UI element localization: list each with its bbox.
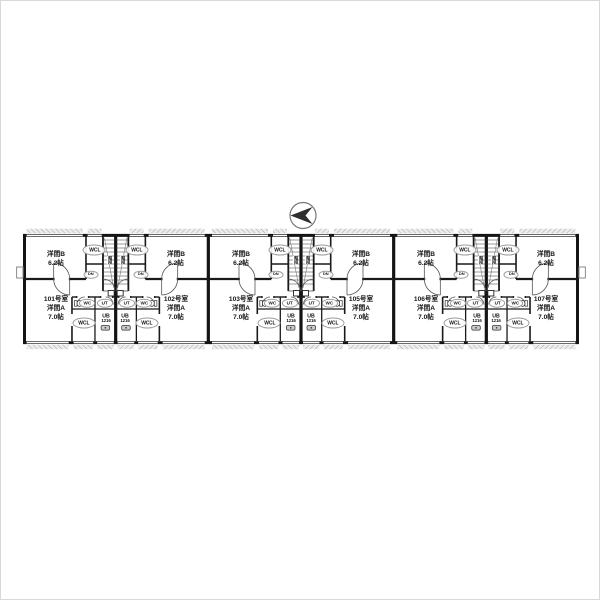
toilet-label: WC: [264, 299, 280, 308]
bath-size-label: 1216: [101, 318, 110, 323]
stairs-label: 階段: [302, 250, 312, 270]
closet-a-label: WCL: [321, 317, 344, 328]
room-a-size: 7.0帖: [48, 311, 64, 321]
room-b-size: 6.2帖: [168, 257, 184, 267]
room-b-size: 6.2帖: [418, 257, 434, 267]
unit-107: 洋間B 6.2帖 WCL 階段 DN 107号室 洋間A 7.0帖 UT WC …: [486, 234, 579, 344]
bath-label: UB: [473, 313, 481, 319]
utility-label: UT: [97, 299, 113, 308]
closet-b-label: WCL: [454, 245, 477, 256]
unit-number: 105号室: [349, 293, 373, 303]
toilet-label: WC: [136, 299, 152, 308]
closet-b-label: WCL: [268, 245, 291, 256]
room-b-label: 洋間B: [417, 248, 435, 258]
room-a-label: 洋間A: [417, 302, 435, 312]
toilet-label: WC: [450, 299, 466, 308]
closet-a-label: WCL: [443, 317, 466, 328]
room-a-size: 7.0帖: [418, 311, 434, 321]
room-b-label: 洋間B: [47, 248, 65, 258]
room-a-size: 7.0帖: [233, 311, 249, 321]
closet-b-label: WCL: [311, 245, 334, 256]
bath-size-label: 1216: [491, 318, 500, 323]
bath-size-label: 1216: [306, 318, 315, 323]
unit-number: 107号室: [534, 293, 558, 303]
stairs-label: 階段: [104, 250, 114, 270]
bath-label: UB: [102, 313, 110, 319]
down-label: DN: [319, 270, 334, 279]
room-b-label: 洋間B: [232, 248, 250, 258]
closet-a-label: WCL: [258, 317, 281, 328]
room-a-label: 洋間A: [352, 302, 370, 312]
unit-number: 102号室: [164, 293, 188, 303]
down-label: DN: [504, 270, 519, 279]
bath-size-label: 1216: [287, 318, 296, 323]
room-a-label: 洋間A: [537, 302, 555, 312]
down-label: DN: [133, 270, 148, 279]
unit-103: 洋間B 6.2帖 WCL 階段 DN 103号室 洋間A 7.0帖 UT WC …: [208, 234, 301, 344]
units-layer: 洋間B 6.2帖 WCL 階段 DN 101号室 洋間A 7.0帖 UT WC …: [1, 1, 600, 600]
closet-a-label: WCL: [73, 317, 96, 328]
closet-a-label: WCL: [506, 317, 529, 328]
room-b-size: 6.2帖: [353, 257, 369, 267]
unit-102: 洋間B 6.2帖 WCL 階段 DN 102号室 洋間A 7.0帖 UT WC …: [116, 234, 209, 344]
bath-label: UB: [492, 313, 500, 319]
bath-label: UB: [307, 313, 315, 319]
room-b-size: 6.2帖: [538, 257, 554, 267]
room-b-label: 洋間B: [537, 248, 555, 258]
room-b-size: 6.2帖: [233, 257, 249, 267]
unit-number: 106号室: [414, 293, 438, 303]
page: 洋間B 6.2帖 WCL 階段 DN 101号室 洋間A 7.0帖 UT WC …: [0, 0, 600, 600]
toilet-label: WC: [322, 299, 338, 308]
utility-label: UT: [489, 299, 505, 308]
closet-b-label: WCL: [83, 245, 106, 256]
bath-size-label: 1216: [472, 318, 481, 323]
down-label: DN: [83, 270, 98, 279]
stairs-label: 階段: [475, 250, 485, 270]
closet-b-label: WCL: [496, 245, 519, 256]
closet-b-label: WCL: [125, 245, 148, 256]
room-b-label: 洋間B: [167, 248, 185, 258]
down-label: DN: [454, 270, 469, 279]
room-a-size: 7.0帖: [353, 311, 369, 321]
stairs-label: 階段: [117, 250, 127, 270]
unit-101: 洋間B 6.2帖 WCL 階段 DN 101号室 洋間A 7.0帖 UT WC …: [23, 234, 116, 344]
room-a-label: 洋間A: [167, 302, 185, 312]
utility-label: UT: [282, 299, 298, 308]
room-a-label: 洋間A: [232, 302, 250, 312]
unit-number: 101号室: [44, 293, 68, 303]
down-label: DN: [268, 270, 283, 279]
utility-label: UT: [304, 299, 320, 308]
closet-a-label: WCL: [136, 317, 159, 328]
room-a-size: 7.0帖: [538, 311, 554, 321]
utility-label: UT: [119, 299, 135, 308]
bath-label: UB: [287, 313, 295, 319]
utility-label: UT: [467, 299, 483, 308]
unit-105: 洋間B 6.2帖 WCL 階段 DN 105号室 洋間A 7.0帖 UT WC …: [301, 234, 394, 344]
bath-label: UB: [122, 313, 130, 319]
unit-number: 103号室: [229, 293, 253, 303]
room-b-size: 6.2帖: [48, 257, 64, 267]
toilet-label: WC: [507, 299, 523, 308]
room-a-label: 洋間A: [47, 302, 65, 312]
stairs-label: 階段: [488, 250, 498, 270]
room-a-size: 7.0帖: [168, 311, 184, 321]
room-b-label: 洋間B: [352, 248, 370, 258]
unit-106: 洋間B 6.2帖 WCL 階段 DN 106号室 洋間A 7.0帖 UT WC …: [394, 234, 487, 344]
stairs-label: 階段: [290, 250, 300, 270]
toilet-label: WC: [79, 299, 95, 308]
bath-size-label: 1216: [121, 318, 130, 323]
